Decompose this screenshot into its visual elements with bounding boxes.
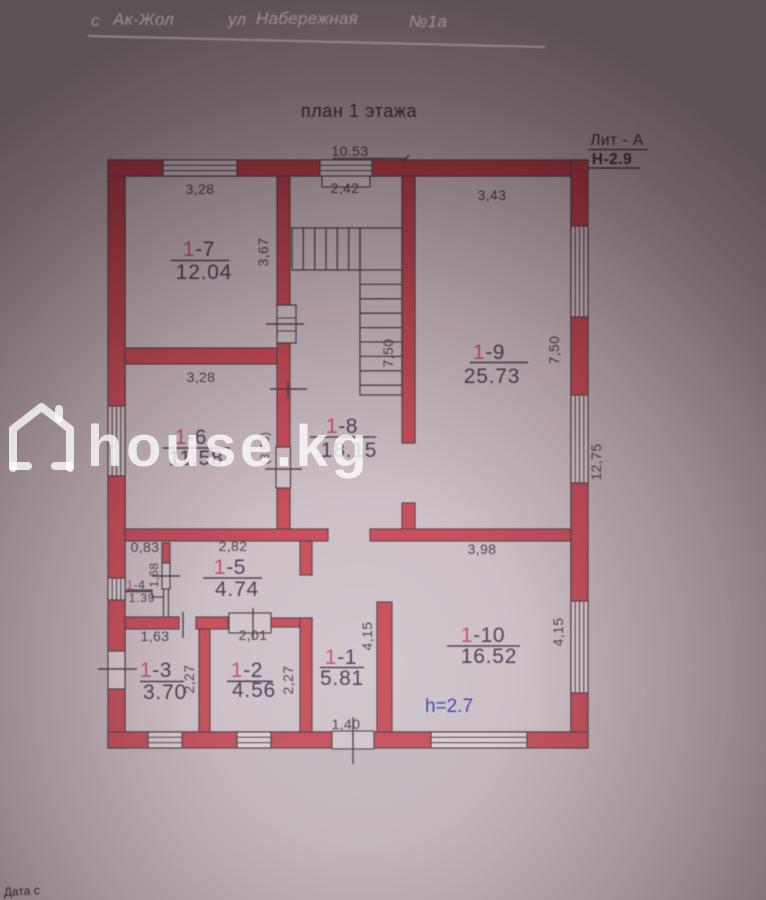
svg-text:Дата с: Дата с <box>3 883 40 899</box>
svg-text:1,68: 1,68 <box>147 563 161 588</box>
svg-text:16.52: 16.52 <box>461 645 518 668</box>
svg-text:4,15: 4,15 <box>550 618 566 647</box>
svg-text:2,01: 2,01 <box>239 627 268 643</box>
svg-text:1-8: 1-8 <box>326 415 358 438</box>
svg-text:1-6: 1-6 <box>175 426 207 449</box>
svg-text:4.56: 4.56 <box>232 679 276 702</box>
svg-text:план 1 этажа: план 1 этажа <box>301 101 418 121</box>
svg-text:3,28: 3,28 <box>187 369 216 385</box>
svg-text:2,42: 2,42 <box>331 180 360 196</box>
svg-text:5.81: 5.81 <box>320 667 364 690</box>
svg-text:1-4: 1-4 <box>126 578 145 592</box>
svg-text:3,67: 3,67 <box>255 238 271 267</box>
svg-text:7,50: 7,50 <box>546 336 562 365</box>
svg-text:10.53: 10.53 <box>331 143 368 159</box>
svg-text:3,43: 3,43 <box>478 187 507 203</box>
svg-text:h=2.7: h=2.7 <box>425 696 473 717</box>
svg-text:1-9: 1-9 <box>473 341 505 364</box>
svg-text:3,28: 3,28 <box>186 181 215 197</box>
svg-text:Лит - А: Лит - А <box>590 132 644 149</box>
svg-text:1-7: 1-7 <box>183 238 215 261</box>
svg-text:7,50: 7,50 <box>380 339 396 368</box>
svg-text:3,98: 3,98 <box>468 541 497 557</box>
svg-text:4.74: 4.74 <box>215 578 259 601</box>
svg-text:(3,53): (3,53) <box>260 432 272 464</box>
svg-text:12,75: 12,75 <box>588 443 604 480</box>
svg-text:Н-2.9: Н-2.9 <box>592 151 632 168</box>
svg-text:1,63: 1,63 <box>141 628 170 644</box>
svg-text:11.58: 11.58 <box>169 447 224 470</box>
svg-text:1-10: 1-10 <box>461 624 505 647</box>
svg-text:25.73: 25.73 <box>464 365 521 388</box>
svg-text:1-1: 1-1 <box>325 646 357 669</box>
svg-text:2,27: 2,27 <box>280 666 296 695</box>
svg-text:1-5: 1-5 <box>214 556 246 579</box>
svg-text:2,82: 2,82 <box>219 538 248 554</box>
svg-text:18.15: 18.15 <box>321 439 378 462</box>
svg-text:0,83: 0,83 <box>131 539 160 555</box>
svg-text:3.70: 3.70 <box>143 681 187 704</box>
svg-text:4,15: 4,15 <box>359 622 375 651</box>
svg-text:1-3: 1-3 <box>140 659 172 682</box>
svg-text:1,40: 1,40 <box>332 716 361 732</box>
svg-text:12.04: 12.04 <box>176 261 233 284</box>
svg-text:1.39: 1.39 <box>129 591 156 605</box>
